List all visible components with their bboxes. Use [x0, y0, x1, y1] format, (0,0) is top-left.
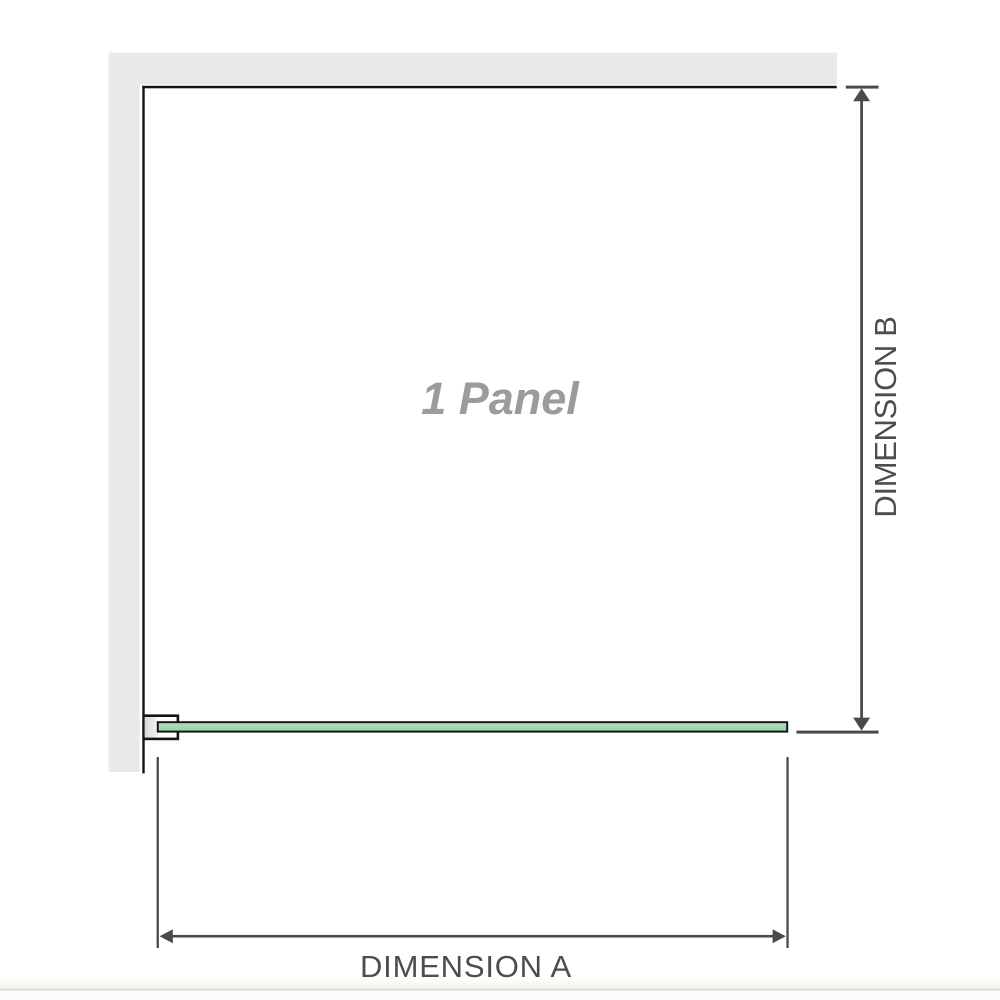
svg-text:DIMENSION B: DIMENSION B: [868, 316, 903, 517]
svg-text:1 Panel: 1 Panel: [421, 373, 580, 424]
